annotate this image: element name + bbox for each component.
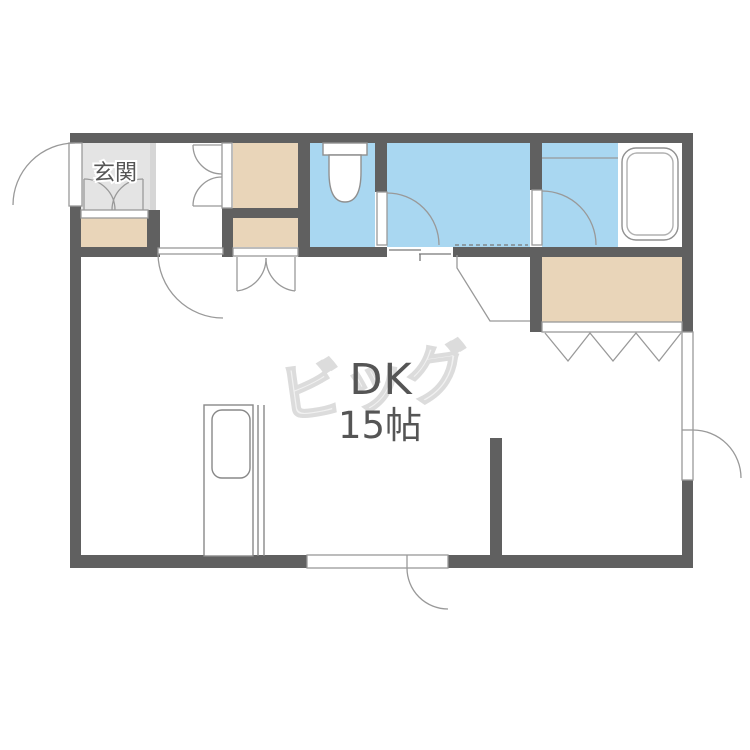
kitchen-partition-line xyxy=(457,255,530,321)
room-shoe-cabinet xyxy=(81,218,147,247)
wall-closet-toilet xyxy=(298,143,310,247)
wall-top xyxy=(70,133,693,143)
closet-upper-door-arc-bottom xyxy=(193,177,222,206)
room-washroom xyxy=(387,143,530,247)
balcony-door-right-opening xyxy=(682,332,693,480)
wall-storage-right-left xyxy=(530,247,542,332)
kitchen-sink xyxy=(212,410,250,478)
storage-right-bifold-zigzag xyxy=(545,333,681,361)
hall-dk-door-leaf xyxy=(158,248,223,254)
wall-washroom-bottom xyxy=(453,247,682,257)
room-closet-upper xyxy=(233,143,300,208)
wall-left-corner xyxy=(70,133,81,143)
wall-left xyxy=(70,206,81,568)
genkan-label: 玄関 xyxy=(93,161,137,186)
room-storage-right xyxy=(542,257,682,322)
closet-lower-door-arc-left xyxy=(237,258,266,291)
toilet-bowl xyxy=(329,155,361,202)
closet-upper-door-arc-top xyxy=(193,145,222,174)
floor-plan: ビッグ xyxy=(0,0,750,750)
shoe-cabinet-door-frame xyxy=(81,210,148,218)
room-closet-lower xyxy=(233,218,298,247)
wall-right-upper xyxy=(682,133,693,332)
floor-plan-canvas: ビッグ xyxy=(0,0,750,750)
genkan-step-edge xyxy=(150,143,156,210)
balcony-door-right-arc xyxy=(693,430,741,478)
wall-bottom-right xyxy=(448,555,693,568)
hall-dk-door-arc xyxy=(158,253,223,318)
wall-toilet-bottom xyxy=(298,247,387,257)
toilet-door-leaf xyxy=(377,192,387,245)
closet-upper-door-frame xyxy=(222,143,232,208)
balcony-door-bottom-opening xyxy=(307,555,448,568)
bath-door-leaf xyxy=(532,190,542,245)
wall-bottom-left xyxy=(70,555,307,568)
closet-lower-door-frame xyxy=(233,248,298,256)
wall-genkan-row-bottom xyxy=(81,247,158,257)
closet-lower-door-arc-right xyxy=(266,258,295,291)
dk-label: DK xyxy=(349,355,413,405)
wall-stub-center xyxy=(490,438,502,556)
wall-right-lower xyxy=(682,480,693,568)
storage-right-door-frame xyxy=(542,322,682,332)
bathtub-fixture xyxy=(622,148,678,240)
kitchen-sink-fixture xyxy=(204,405,264,556)
bathtub-inner xyxy=(627,153,673,235)
toilet-tank xyxy=(323,143,367,155)
entrance-door-opening xyxy=(69,143,82,206)
entrance-door-arc xyxy=(13,143,75,205)
wall-toilet-washroom xyxy=(375,143,387,192)
dk-size-label: 15帖 xyxy=(338,404,422,447)
wall-washroom-bath xyxy=(530,143,542,190)
wall-closet-divider xyxy=(233,208,300,218)
balcony-door-bottom-arc xyxy=(407,568,448,609)
